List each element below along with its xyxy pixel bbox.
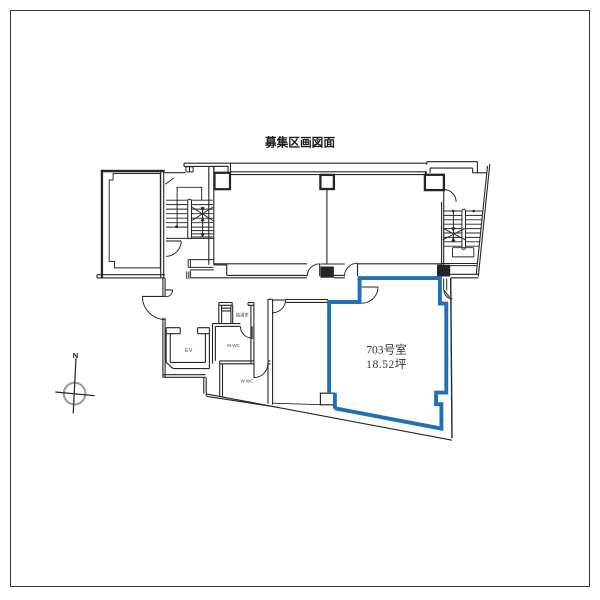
svg-text:703号室: 703号室 (366, 342, 407, 356)
svg-text:18.52坪: 18.52坪 (366, 358, 407, 371)
svg-text:M.WC: M.WC (227, 343, 240, 348)
svg-text:募集区画図面: 募集区画図面 (264, 136, 335, 150)
svg-text:給湯室: 給湯室 (236, 312, 250, 319)
svg-text:N: N (73, 351, 78, 360)
svg-text:EV: EV (185, 348, 193, 354)
svg-text:W.WC: W.WC (240, 379, 254, 384)
